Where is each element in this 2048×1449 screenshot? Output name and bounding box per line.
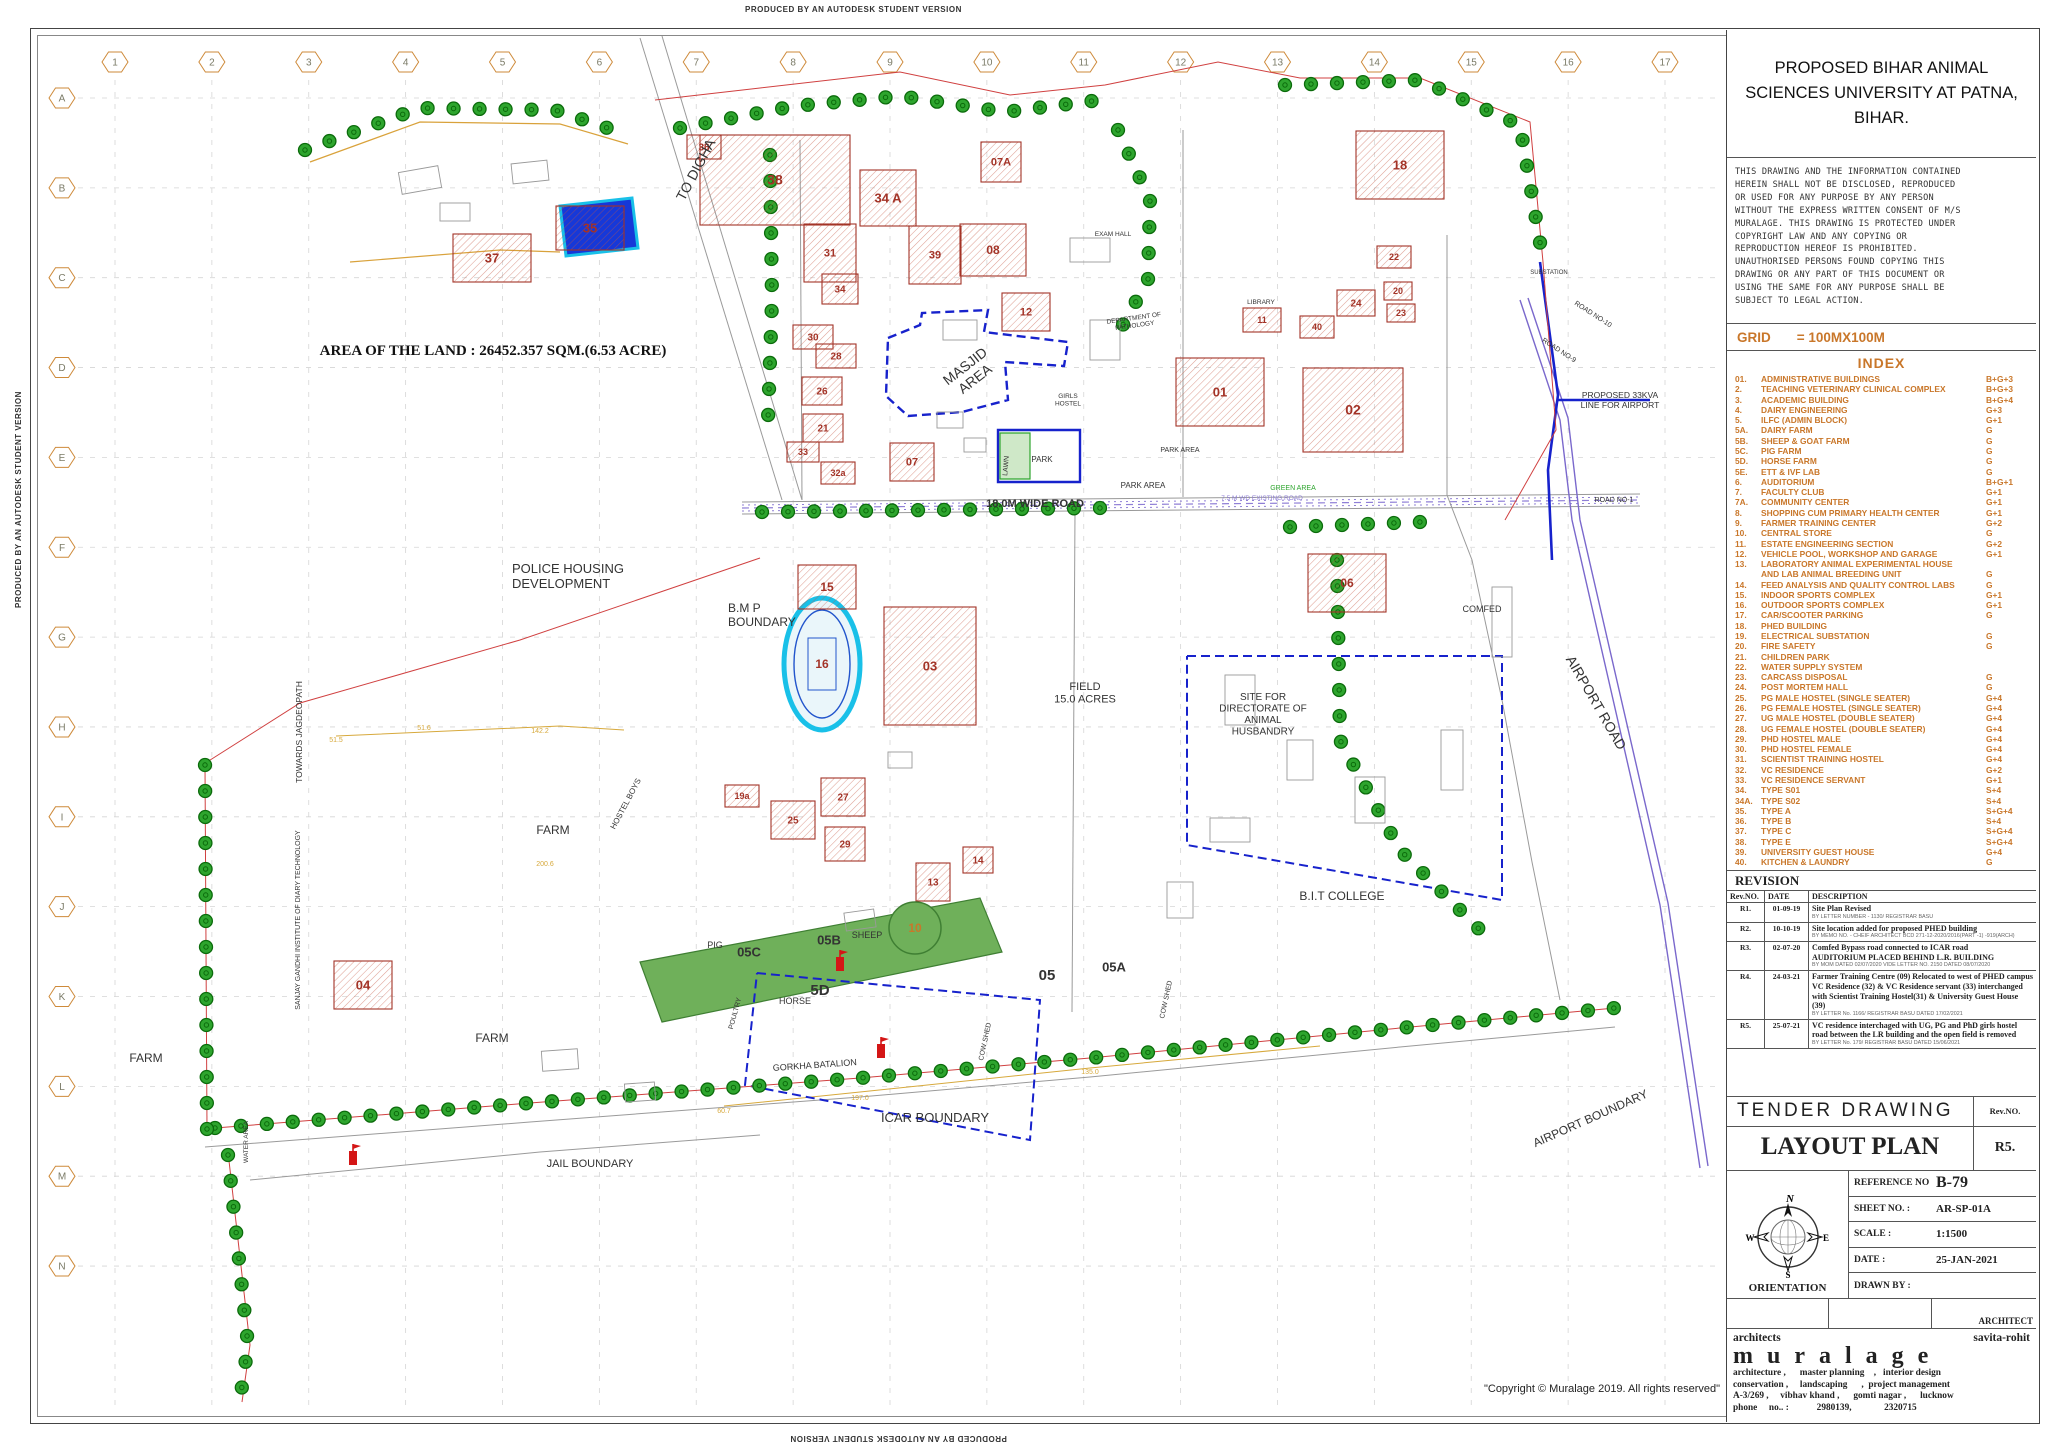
tree-icon: [597, 1091, 610, 1104]
svg-text:I: I: [61, 812, 64, 823]
map-label: 51.6: [417, 725, 431, 732]
svg-text:06: 06: [1340, 576, 1354, 590]
minor-building: [511, 160, 549, 184]
tree-icon: [960, 1062, 973, 1075]
index-item: 19.ELECTRICAL SUBSTATIONG: [1735, 631, 2028, 641]
svg-text:39: 39: [929, 250, 941, 262]
minor-building: [398, 166, 441, 195]
tree-icon: [982, 103, 995, 116]
orientation-section: N E W S ORIENTATION REFERENCE NOB-79SHEE…: [1727, 1171, 2036, 1299]
building-27: 27: [821, 778, 865, 816]
tree-icon: [1284, 521, 1297, 534]
tree-icon: [239, 1355, 252, 1368]
index-item: 29.PHD HOSTEL MALEG+4: [1735, 734, 2028, 744]
tree-icon: [442, 1103, 455, 1116]
firm-line-3: A-3/269 , vibhav khand , gomti nagar , l…: [1733, 1391, 2030, 1403]
building-05: 05: [1039, 967, 1056, 984]
compass-cell: N E W S ORIENTATION: [1727, 1171, 1849, 1298]
svg-text:23: 23: [1396, 308, 1406, 318]
tree-icon: [1279, 79, 1292, 92]
svg-text:4: 4: [403, 58, 409, 69]
tree-icon: [1193, 1041, 1206, 1054]
copyright-note: "Copyright © Muralage 2019. All rights r…: [1425, 1383, 1720, 1395]
svg-text:04: 04: [356, 977, 371, 992]
tree-icon: [762, 408, 775, 421]
building-12: 12: [1002, 293, 1050, 331]
tree-icon: [520, 1097, 533, 1110]
index-item: 26.PG FEMALE HOSTEL (SINGLE SEATER)G+4: [1735, 703, 2028, 713]
svg-text:16: 16: [815, 657, 829, 671]
tree-icon: [1033, 101, 1046, 114]
titleblock-field: DATE :25-JAN-2021: [1849, 1248, 2036, 1274]
map-label: LIBRARY: [1247, 299, 1275, 306]
tree-icon: [1008, 104, 1021, 117]
tree-icon: [1085, 95, 1098, 108]
grid-badge: L: [49, 1076, 75, 1096]
svg-text:12: 12: [1020, 307, 1032, 319]
tree-icon: [260, 1117, 273, 1130]
map-label: COW SHED: [978, 1022, 993, 1061]
tree-icon: [1435, 885, 1448, 898]
tree-icon: [882, 1069, 895, 1082]
tree-icon: [1504, 1011, 1517, 1024]
tree-icon: [199, 940, 212, 953]
index-item: 36.TYPE BS+4: [1735, 816, 2028, 826]
map-label: FARM: [129, 1051, 162, 1065]
tender-drawing-label: TENDER DRAWING: [1727, 1097, 1974, 1126]
building-37: 37: [453, 234, 531, 282]
tree-icon: [1133, 171, 1146, 184]
svg-text:35: 35: [583, 220, 597, 235]
building-23: 23: [1387, 304, 1415, 322]
tree-icon: [545, 1095, 558, 1108]
tree-icon: [1504, 114, 1517, 127]
minor-building: [1492, 587, 1512, 657]
tree-icon: [911, 504, 924, 517]
tree-icon: [827, 96, 840, 109]
grid-badge: B: [49, 178, 75, 198]
tree-icon: [1309, 520, 1322, 533]
svg-text:19a: 19a: [734, 791, 750, 801]
tree-icon: [421, 102, 434, 115]
index-item: 8.SHOPPING CUM PRIMARY HEALTH CENTERG+1: [1735, 508, 2028, 518]
tree-icon: [1413, 516, 1426, 529]
building-26: 26: [802, 377, 842, 405]
tree-icon: [235, 1278, 248, 1291]
index-item: 13.LABORATORY ANIMAL EXPERIMENTAL HOUSE: [1735, 559, 2028, 569]
tree-icon: [1090, 1051, 1103, 1064]
index-item: 33.VC RESIDENCE SERVANTG+1: [1735, 775, 2028, 785]
map-label: POLICE HOUSINGDEVELOPMENT: [512, 561, 624, 591]
svg-text:13: 13: [1272, 58, 1284, 69]
index-list: 01.ADMINISTRATIVE BUILDINGSB+G+32.TEACHI…: [1735, 374, 2028, 868]
tree-icon: [1534, 236, 1547, 249]
index-item: 2.TEACHING VETERINARY CLINICAL COMPLEXB+…: [1735, 384, 2028, 394]
tree-icon: [859, 504, 872, 517]
map-label: 51.5: [329, 737, 343, 744]
grid-badge: M: [49, 1166, 75, 1186]
grid-badge: 17: [1652, 52, 1678, 72]
revision-section: REVISION Rev.NO.DATEDESCRIPTIONR1.01-09-…: [1727, 871, 2036, 1097]
revision-row-cell: 25-07-21: [1765, 1020, 1809, 1049]
building-28: 28: [816, 344, 856, 368]
tree-icon: [235, 1381, 248, 1394]
svg-text:18: 18: [1393, 157, 1407, 172]
tree-icon: [763, 356, 776, 369]
tree-icon: [1038, 1055, 1051, 1068]
tree-icon: [908, 1067, 921, 1080]
index-item: 34A.TYPE S02S+4: [1735, 796, 2028, 806]
index-item: 39.UNIVERSITY GUEST HOUSEG+4: [1735, 847, 2028, 857]
map-label: PARK: [1031, 455, 1053, 464]
tree-icon: [1323, 1028, 1336, 1041]
minor-building: [888, 752, 912, 768]
revision-row-cell: R2.: [1727, 923, 1765, 943]
map-label: B.I.T COLLEGE: [1299, 889, 1384, 903]
tree-icon: [200, 1096, 213, 1109]
building-11: 11: [1243, 308, 1281, 332]
tree-icon: [199, 862, 212, 875]
minor-building: [440, 203, 470, 221]
revision-row-cell: 24-03-21: [1765, 971, 1809, 1019]
tree-icon: [833, 505, 846, 518]
tree-icon: [1456, 93, 1469, 106]
minor-building: [1210, 818, 1250, 842]
grid-badge: 5: [490, 52, 516, 72]
svg-text:20: 20: [1393, 286, 1403, 296]
tree-icon: [299, 144, 312, 157]
tree-icon: [1141, 1046, 1154, 1059]
svg-text:6: 6: [597, 58, 603, 69]
tree-icon: [1271, 1033, 1284, 1046]
index-item: 35.TYPE AS+G+4: [1735, 806, 2028, 816]
map-label: 60.7: [717, 1108, 731, 1115]
building-24: 24: [1337, 290, 1375, 316]
tree-icon: [396, 108, 409, 121]
revision-row-cell: R3.: [1727, 942, 1765, 971]
index-item: 37.TYPE CS+G+4: [1735, 826, 2028, 836]
grid-note-value: = 100MX100M: [1797, 330, 1885, 345]
tree-icon: [199, 914, 212, 927]
index-item: 18.PHED BUILDING: [1735, 621, 2028, 631]
titleblock-field: REFERENCE NOB-79: [1849, 1171, 2036, 1197]
compass-rose-icon: N E W S: [1745, 1194, 1831, 1280]
building-32a: 32a: [821, 462, 855, 484]
tree-icon: [727, 1081, 740, 1094]
tree-icon: [1333, 709, 1346, 722]
building-40: 40: [1300, 316, 1334, 338]
tree-icon: [1359, 781, 1372, 794]
tree-icon: [1400, 1021, 1413, 1034]
tree-icon: [1426, 1018, 1439, 1031]
building-07: 07: [890, 443, 934, 481]
site-plan-map: 1234567891011121314151617ABCDEFGHIJKLMN3…: [36, 34, 1726, 1418]
grid-badge: 10: [974, 52, 1000, 72]
tree-icon: [1116, 1048, 1129, 1061]
svg-text:05: 05: [1039, 967, 1056, 984]
grid-badge: 8: [780, 52, 806, 72]
map-label: FARM: [475, 1031, 508, 1045]
building-34: 34: [822, 274, 858, 304]
firm-line-4: phone no.. : 2980139, 2320715: [1733, 1403, 2030, 1415]
tree-icon: [1480, 103, 1493, 116]
tree-icon: [199, 888, 212, 901]
svg-text:A: A: [59, 94, 66, 105]
tree-icon: [1408, 74, 1421, 87]
svg-text:7: 7: [693, 58, 699, 69]
tree-icon: [1382, 75, 1395, 88]
tree-icon: [986, 1060, 999, 1073]
firm-line-2: conservation , landscaping , project man…: [1733, 1380, 2030, 1392]
revision-row-cell: R1.: [1727, 903, 1765, 923]
tree-icon: [200, 1044, 213, 1057]
tree-icon: [1112, 124, 1125, 137]
tree-icon: [1143, 221, 1156, 234]
svg-text:B: B: [59, 183, 66, 194]
tree-icon: [1142, 247, 1155, 260]
layout-plan-row: LAYOUT PLAN R5.: [1727, 1127, 2036, 1171]
index-item: 01.ADMINISTRATIVE BUILDINGSB+G+3: [1735, 374, 2028, 384]
map-label: B.M PBOUNDARY: [728, 601, 796, 629]
revision-row-cell: VC residence interchaged with UG, PG and…: [1809, 1020, 2036, 1049]
svg-text:N: N: [58, 1262, 65, 1273]
index-item: 6.AUDITORIUMB+G+1: [1735, 477, 2028, 487]
map-label: MASJIDAREA: [940, 344, 1000, 401]
tree-icon: [675, 1085, 688, 1098]
index-item: 16.OUTDOOR SPORTS COMPLEXG+1: [1735, 600, 2028, 610]
svg-text:08: 08: [986, 243, 1000, 257]
index-item: 25.PG MALE HOSTEL (SINGLE SEATER)G+4: [1735, 693, 2028, 703]
tree-icon: [1332, 657, 1345, 670]
svg-text:15: 15: [1466, 58, 1478, 69]
svg-text:J: J: [60, 902, 65, 913]
grid-badge: G: [49, 627, 75, 647]
tree-icon: [199, 759, 212, 772]
index-item: 23.CARCASS DISPOSALG: [1735, 672, 2028, 682]
svg-text:07: 07: [906, 457, 918, 469]
map-label: 18.0M WIDE ROAD: [986, 498, 1084, 510]
grid-badge: A: [49, 88, 75, 108]
layout-plan-label: LAYOUT PLAN: [1727, 1127, 1974, 1170]
hydrant-icon: [877, 1037, 889, 1058]
index-item: 20.FIRE SAFETYG: [1735, 641, 2028, 651]
tree-icon: [779, 1077, 792, 1090]
tree-icon: [753, 1079, 766, 1092]
svg-text:37: 37: [485, 250, 499, 265]
tree-icon: [238, 1304, 251, 1317]
map-label: ROAD NO-10: [1573, 300, 1613, 329]
tree-icon: [763, 382, 776, 395]
firm-architect-names: savita-rohit: [1973, 1332, 2030, 1344]
revision-row-cell: Comfed Bypass road connected to ICAR roa…: [1809, 942, 2036, 971]
tree-icon: [473, 102, 486, 115]
grid-badge: 4: [393, 52, 419, 72]
tree-icon: [600, 121, 613, 134]
tree-icon: [1516, 134, 1529, 147]
area-note: AREA OF THE LAND : 26452.357 SQM.(6.53 A…: [320, 343, 667, 359]
map-label: 200.6: [536, 861, 554, 868]
map-label: EXAM HALL: [1095, 231, 1132, 238]
map-label: 135.0: [1081, 1069, 1099, 1076]
svg-text:22: 22: [1389, 252, 1399, 262]
tree-icon: [1452, 1016, 1465, 1029]
building-34A: 34 A: [860, 170, 916, 226]
grid-badge: 16: [1555, 52, 1581, 72]
tree-icon: [312, 1113, 325, 1126]
tree-icon: [232, 1252, 245, 1265]
tree-icon: [224, 1174, 237, 1187]
tree-icon: [347, 126, 360, 139]
tree-icon: [576, 113, 589, 126]
map-label: 7.5 M WD EXISTING ROAD: [1221, 495, 1303, 502]
map-label: SITE FORDIRECTORATE OFANIMALHUSBANDRY: [1219, 692, 1306, 738]
revision-header: Rev.NO.: [1727, 891, 1765, 903]
tree-icon: [338, 1111, 351, 1124]
revision-row-cell: Farmer Training Centre (09) Relocated to…: [1809, 971, 2036, 1019]
tree-icon: [416, 1105, 429, 1118]
building-08: 08: [960, 224, 1026, 276]
tree-icon: [725, 112, 738, 125]
minor-building: [964, 438, 986, 452]
tree-icon: [765, 252, 778, 265]
grid-badge: J: [49, 897, 75, 917]
svg-text:K: K: [59, 992, 66, 1003]
index-item: 4.DAIRY ENGINEERINGG+3: [1735, 405, 2028, 415]
map-label: SHEEP: [852, 930, 883, 940]
tree-icon: [1520, 159, 1533, 172]
map-label: HOSTEL BOYS: [609, 777, 643, 831]
index-item: 5C.PIG FARMG: [1735, 446, 2028, 456]
svg-text:21: 21: [817, 423, 829, 434]
titleblock-field: SHEET NO. :AR-SP-01A: [1849, 1197, 2036, 1223]
grid-badge: K: [49, 987, 75, 1007]
index-item: 34.TYPE S01S+4: [1735, 785, 2028, 795]
svg-text:H: H: [58, 722, 65, 733]
revision-row-cell: 01-09-19: [1765, 903, 1809, 923]
map-label: AIRPORT ROAD: [1563, 653, 1630, 753]
tree-icon: [200, 992, 213, 1005]
building-05B: 05B: [817, 932, 841, 947]
grid-note: GRID = 100MX100M: [1727, 324, 2036, 351]
tree-icon: [1433, 82, 1446, 95]
grid-badge: 15: [1458, 52, 1484, 72]
tree-icon: [230, 1226, 243, 1239]
produced-by-left: PRODUCED BY AN AUTODESK STUDENT VERSION: [14, 391, 23, 608]
building-20: 20: [1384, 282, 1412, 300]
tree-icon: [1143, 195, 1156, 208]
tree-icon: [853, 93, 866, 106]
svg-text:32a: 32a: [830, 468, 846, 478]
tree-icon: [1472, 922, 1485, 935]
tree-icon: [390, 1107, 403, 1120]
tree-icon: [937, 503, 950, 516]
compass-w: W: [1745, 1233, 1754, 1243]
revision-table: Rev.NO.DATEDESCRIPTIONR1.01-09-19Site Pl…: [1727, 891, 2036, 1049]
tree-icon: [1581, 1004, 1594, 1017]
svg-text:25: 25: [787, 815, 799, 826]
svg-text:E: E: [59, 453, 66, 464]
tree-icon: [525, 103, 538, 116]
revision-row-cell: R5.: [1727, 1020, 1765, 1049]
minor-building: [1167, 882, 1193, 918]
svg-text:02: 02: [1345, 402, 1361, 418]
tree-icon: [372, 117, 385, 130]
map-label: WATER AREA: [243, 1120, 250, 1163]
tree-icon: [199, 784, 212, 797]
svg-text:10: 10: [908, 921, 922, 935]
tree-icon: [1525, 185, 1538, 198]
svg-text:16: 16: [1563, 58, 1575, 69]
svg-text:34 A: 34 A: [875, 190, 903, 205]
tender-drawing-row: TENDER DRAWING Rev.NO.: [1727, 1097, 2036, 1127]
architect-row: ARCHITECT: [1727, 1299, 2036, 1329]
map-label: SUBSTATION: [1530, 270, 1567, 276]
svg-text:31: 31: [824, 248, 836, 260]
tree-icon: [1129, 295, 1142, 308]
map-label: FARM: [536, 823, 569, 837]
index-item: 28.UG FEMALE HOSTEL (DOUBLE SEATER)G+4: [1735, 724, 2028, 734]
svg-text:L: L: [59, 1082, 65, 1093]
building-33: 33: [787, 442, 819, 462]
tree-icon: [447, 102, 460, 115]
map-label: PROPOSED 33KVALINE FOR AIRPORT: [1581, 390, 1660, 410]
svg-text:14: 14: [1369, 58, 1381, 69]
tree-icon: [551, 104, 564, 117]
svg-text:38: 38: [767, 172, 783, 188]
titleblock-field: DRAWN BY :: [1849, 1273, 2036, 1298]
svg-text:9: 9: [887, 58, 893, 69]
tree-icon: [807, 505, 820, 518]
grid-badge: 6: [586, 52, 612, 72]
svg-text:5D: 5D: [810, 982, 829, 999]
grid-badge: E: [49, 447, 75, 467]
tree-icon: [1335, 519, 1348, 532]
svg-text:34: 34: [834, 284, 846, 295]
revision-row-cell: R4.: [1727, 971, 1765, 1019]
tree-icon: [931, 95, 944, 108]
minor-building: [1287, 740, 1313, 780]
map-label: AIRPORT BOUNDARY: [1531, 1087, 1650, 1150]
tree-icon: [499, 103, 512, 116]
svg-text:D: D: [58, 363, 65, 374]
firm-name: muralage: [1733, 1344, 2030, 1368]
index-item: 5B.SHEEP & GOAT FARMG: [1735, 436, 2028, 446]
tree-icon: [934, 1064, 947, 1077]
index-item: 10.CENTRAL STOREG: [1735, 528, 2028, 538]
map-label: TOWARDS JAGDEOPATH: [294, 681, 304, 783]
svg-text:10: 10: [981, 58, 993, 69]
tree-icon: [1529, 210, 1542, 223]
svg-text:11: 11: [1257, 315, 1267, 325]
index-title: INDEX: [1735, 355, 2028, 371]
grid-badge: 13: [1265, 52, 1291, 72]
index-item: 5D.HORSE FARMG: [1735, 456, 2028, 466]
svg-text:40: 40: [1312, 322, 1322, 332]
building-21: 21: [803, 414, 843, 442]
index-item: 15.INDOOR SPORTS COMPLEXG+1: [1735, 590, 2028, 600]
tree-icon: [765, 304, 778, 317]
minor-building: [541, 1049, 578, 1071]
tree-icon: [765, 278, 778, 291]
index-item: AND LAB ANIMAL BREEDING UNITG: [1735, 569, 2028, 579]
tree-icon: [1478, 1014, 1491, 1027]
tree-icon: [781, 505, 794, 518]
building-5D: 5D: [810, 982, 829, 999]
building-04: 04: [334, 961, 392, 1009]
building-13: 13: [916, 863, 950, 901]
svg-text:05A: 05A: [1102, 959, 1126, 974]
tree-icon: [200, 1018, 213, 1031]
